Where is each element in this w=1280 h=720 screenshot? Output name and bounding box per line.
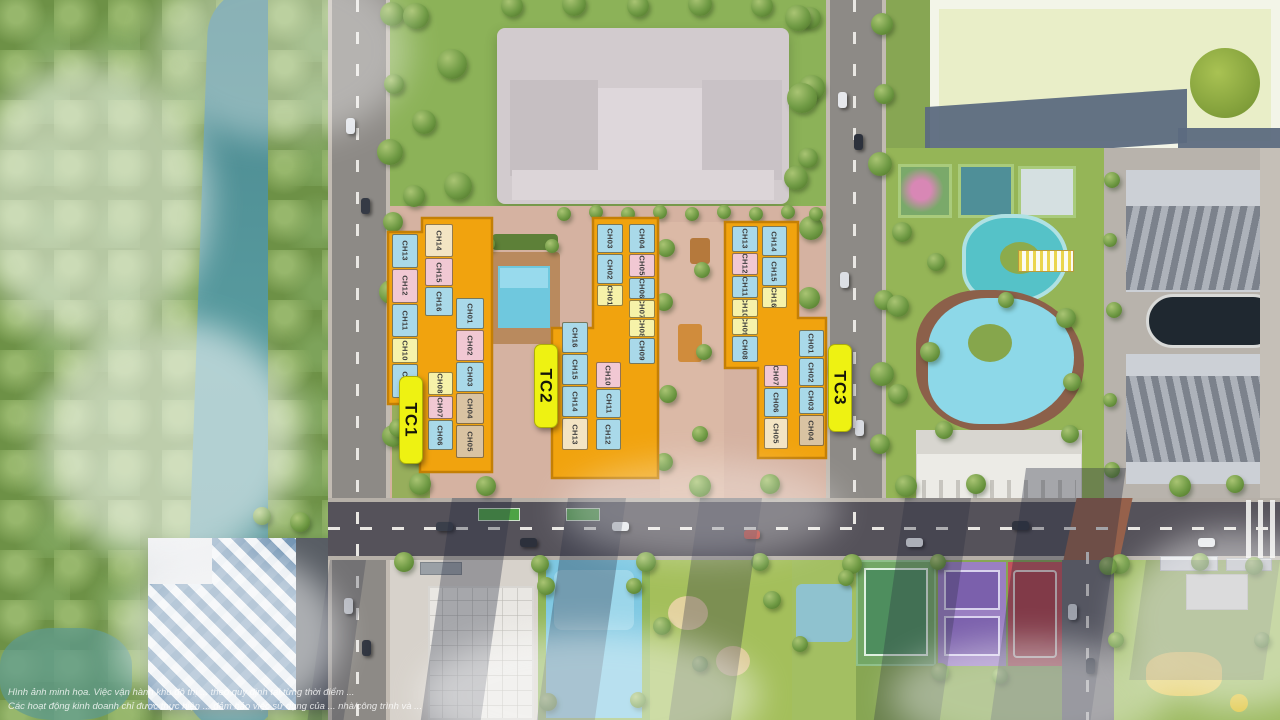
tree: [659, 385, 677, 403]
tree: [930, 554, 946, 570]
road-right-dash: [853, 0, 856, 524]
tree: [409, 473, 431, 495]
masterplan-aerial-view: CH13CH12CH11CH10CH09CH14CH15CH16CH01CH02…: [0, 0, 1280, 720]
tree: [920, 342, 940, 362]
tree: [531, 555, 549, 573]
south-right-playground: [1146, 652, 1222, 696]
tree: [868, 152, 892, 176]
tree: [781, 205, 795, 219]
unit-column-tc2-colB: CH04CH05CH06CH07CH08CH09: [629, 224, 655, 364]
unit-column-tc1-colD: CH08CH07CH06: [428, 372, 453, 450]
unit-tag[interactable]: CH07: [428, 396, 453, 419]
car: [361, 198, 370, 214]
unit-tag[interactable]: CH06: [764, 388, 788, 417]
tower-label-tc1[interactable]: TC1: [399, 376, 423, 464]
pickleball-court-1: [944, 570, 1000, 610]
tree: [888, 384, 908, 404]
tree: [476, 476, 496, 496]
diamond-roof-plain-corner: [148, 538, 212, 584]
tree: [966, 474, 986, 494]
tree: [1099, 557, 1117, 575]
unit-tag[interactable]: CH15: [425, 258, 453, 287]
tree: [384, 74, 404, 94]
car: [1198, 538, 1215, 547]
road-vertical-left: [328, 0, 390, 720]
tree: [931, 663, 949, 681]
tree: [927, 253, 945, 271]
tree: [621, 207, 635, 221]
unit-tag-label: CH12: [401, 276, 410, 296]
unit-tag-label: CH10: [741, 299, 750, 317]
unit-tag[interactable]: CH03: [799, 387, 824, 414]
unit-tag[interactable]: CH14: [562, 386, 588, 417]
unit-tag-label: CH15: [770, 261, 779, 281]
unit-tag-label: CH03: [606, 229, 615, 249]
unit-tag-label: CH16: [435, 292, 444, 312]
tree: [290, 512, 310, 532]
tower-label-tc2[interactable]: TC2: [534, 344, 558, 428]
unit-tag-label: CH10: [604, 365, 613, 385]
tree: [377, 139, 403, 165]
unit-tag-label: CH01: [606, 285, 615, 305]
unit-tag[interactable]: CH13: [732, 226, 758, 252]
tree: [1103, 393, 1117, 407]
tree: [763, 591, 781, 609]
unit-tag[interactable]: CH12: [392, 269, 418, 303]
tree: [589, 205, 603, 219]
unit-tag-label: CH13: [741, 229, 750, 249]
unit-tag-label: CH05: [772, 423, 781, 443]
unit-tag-label: CH08: [741, 339, 750, 359]
unit-tag[interactable]: CH08: [629, 319, 655, 337]
unit-tag-label: CH06: [436, 425, 445, 445]
unit-tag[interactable]: CH08: [732, 336, 758, 362]
unit-tag[interactable]: CH06: [629, 278, 655, 299]
tree: [655, 453, 673, 471]
unit-column-tc3-colD: CH01CH02CH03CH04: [799, 330, 824, 446]
tree: [1104, 462, 1120, 478]
tree: [537, 577, 555, 595]
unit-tag-label: CH09: [741, 318, 750, 336]
tree: [992, 668, 1008, 684]
unit-tag[interactable]: CH12: [732, 253, 758, 275]
unit-tag[interactable]: CH12: [596, 419, 621, 450]
car: [1086, 658, 1095, 674]
unit-column-tc2-colC: CH16CH15CH14CH13: [562, 322, 588, 450]
tree: [998, 292, 1014, 308]
sport-court-blue: [958, 164, 1014, 218]
tree: [895, 475, 917, 497]
unit-tag[interactable]: CH11: [732, 276, 758, 298]
unit-tag-label: CH06: [772, 392, 781, 412]
tree: [636, 552, 656, 572]
unit-tag-label: CH01: [466, 303, 475, 323]
river-bottom-pocket: [0, 628, 132, 720]
tree: [809, 207, 823, 221]
unit-tag[interactable]: CH16: [762, 287, 787, 308]
unit-tag[interactable]: CH16: [562, 322, 588, 353]
unit-tag-label: CH07: [638, 300, 647, 318]
tree: [696, 344, 712, 360]
car: [520, 538, 537, 547]
sand-circle-2: [716, 646, 750, 676]
unit-tag-label: CH14: [435, 230, 444, 250]
unit-tag[interactable]: CH01: [597, 285, 623, 306]
sport-court-white: [1018, 166, 1076, 218]
unit-tag-label: CH05: [638, 255, 647, 275]
tree: [694, 262, 710, 278]
unit-tag-label: CH06: [638, 279, 647, 299]
car: [744, 530, 760, 539]
diamond-roof-dark-strip: [296, 538, 328, 710]
unit-tag-label: CH16: [571, 327, 580, 347]
unit-tag[interactable]: CH04: [629, 224, 655, 253]
tower-label-tc3[interactable]: TC3: [828, 344, 852, 432]
car: [1012, 521, 1029, 530]
tree: [692, 656, 708, 672]
tree: [1191, 553, 1209, 571]
unit-tag-label: CH08: [436, 373, 445, 393]
unit-tag[interactable]: CH13: [562, 418, 588, 450]
tower-label-text: TC1: [401, 402, 421, 437]
unit-tag-label: CH08: [638, 319, 647, 337]
school-roof-left: [510, 80, 598, 176]
tree: [870, 434, 890, 454]
school-roof-center: [598, 88, 702, 180]
unit-tag[interactable]: CH03: [456, 362, 484, 393]
car: [612, 522, 629, 531]
car: [346, 118, 355, 134]
basketball-court: [1013, 570, 1057, 658]
tree: [838, 570, 854, 586]
tree: [630, 692, 646, 708]
unit-tag-label: CH04: [466, 399, 475, 419]
unit-tag[interactable]: CH09: [629, 338, 655, 364]
unit-tag[interactable]: CH16: [425, 287, 453, 316]
unit-tag-label: CH03: [466, 367, 475, 387]
car: [854, 134, 863, 150]
car: [1068, 604, 1077, 620]
unit-tag[interactable]: CH05: [456, 425, 484, 458]
tree: [383, 212, 403, 232]
bus-lane-mark-2: [566, 508, 600, 521]
tree: [798, 287, 820, 309]
canopy-building: [428, 586, 534, 720]
unit-tag[interactable]: CH14: [762, 226, 787, 256]
car: [838, 92, 847, 108]
cabana-row: [1018, 250, 1074, 272]
unit-tag[interactable]: CH09: [732, 318, 758, 336]
tree: [1245, 557, 1263, 575]
unit-tag-label: CH11: [401, 311, 410, 331]
unit-tag-label: CH02: [606, 259, 615, 279]
unit-tag[interactable]: CH07: [629, 300, 655, 318]
kids-zone-deck: [796, 584, 852, 642]
unit-column-tc1-colC: CH01CH02CH03CH04CH05: [456, 298, 484, 458]
road-left-dash: [356, 0, 359, 720]
tree: [539, 693, 557, 711]
sand-circle-1: [668, 596, 708, 630]
unit-column-tc1-colA: CH13CH12CH11CH10CH09: [392, 234, 418, 398]
tennis-court: [864, 568, 928, 656]
tree: [1056, 308, 1076, 328]
tree: [935, 421, 953, 439]
bus-lane-mark-1: [478, 508, 520, 521]
tree: [798, 148, 818, 168]
school-roof-right: [702, 80, 782, 180]
unit-tag-label: CH04: [807, 420, 816, 440]
unit-tag[interactable]: CH01: [799, 330, 824, 357]
unit-tag-label: CH16: [770, 287, 779, 307]
unit-tag[interactable]: CH08: [428, 372, 453, 395]
highrise-roof-a-louvers: [1126, 206, 1280, 290]
unit-tag-label: CH13: [571, 424, 580, 444]
tc12-pool-highlight: [500, 268, 548, 288]
car: [840, 272, 849, 288]
south-pool-highlight: [554, 570, 634, 630]
unit-tag[interactable]: CH03: [597, 224, 623, 253]
unit-column-tc2-colA: CH03CH02CH01: [597, 224, 623, 306]
tree: [874, 84, 894, 104]
tree: [545, 239, 559, 253]
school-roof-bottom: [512, 170, 774, 200]
tree: [1108, 632, 1124, 648]
unit-tag-label: CH12: [604, 424, 613, 444]
tree: [717, 205, 731, 219]
unit-tag-label: CH13: [401, 241, 410, 261]
unit-tag[interactable]: CH07: [764, 365, 788, 387]
unit-tag[interactable]: CH10: [596, 362, 621, 388]
unit-tag[interactable]: CH11: [596, 389, 621, 418]
unit-tag[interactable]: CH15: [562, 354, 588, 385]
unit-tag-label: CH01: [807, 334, 816, 354]
unit-tag[interactable]: CH11: [392, 304, 418, 338]
unit-tag-label: CH04: [638, 228, 647, 248]
unit-tag-label: CH14: [571, 391, 580, 411]
tree: [437, 49, 467, 79]
unit-tag[interactable]: CH02: [799, 358, 824, 385]
tree: [685, 207, 699, 221]
unit-column-tc2-colD: CH10CH11CH12: [596, 362, 621, 450]
tree: [653, 205, 667, 219]
road-h-dash: [328, 527, 1280, 530]
tree: [1063, 373, 1081, 391]
tree: [657, 239, 675, 257]
unit-tag[interactable]: CH14: [425, 224, 453, 257]
bus-shelter-1: [420, 562, 462, 575]
south-lawn: [650, 558, 792, 720]
tree: [394, 552, 414, 572]
tree: [1104, 172, 1120, 188]
unit-tag[interactable]: CH04: [799, 415, 824, 446]
unit-tag-label: CH10: [401, 341, 410, 361]
south-right-pavilion: [1186, 574, 1248, 610]
tree: [653, 617, 671, 635]
south-road-dash: [1086, 552, 1089, 720]
unit-tag[interactable]: CH13: [392, 234, 418, 268]
unit-tag-label: CH07: [772, 366, 781, 386]
unit-tag-label: CH12: [741, 254, 750, 274]
unit-tag-label: CH09: [638, 341, 647, 361]
unit-tag[interactable]: CH06: [428, 420, 453, 450]
unit-tag-label: CH11: [604, 394, 613, 414]
highrise-roof-b-louvers: [1126, 376, 1280, 462]
unit-tag[interactable]: CH10: [732, 299, 758, 317]
unit-tag-label: CH07: [436, 398, 445, 418]
tree: [787, 83, 817, 113]
unit-tag[interactable]: CH10: [392, 338, 418, 363]
tree: [403, 185, 425, 207]
pickleball-court-2: [944, 616, 1000, 656]
unit-tag-label: CH03: [807, 390, 816, 410]
unit-tag[interactable]: CH02: [456, 330, 484, 361]
unit-tag-label: CH15: [571, 359, 580, 379]
tree: [412, 110, 436, 134]
unit-column-tc1-colB: CH14CH15CH16: [425, 224, 453, 316]
unit-column-tc3-colB: CH14CH15CH16: [762, 226, 787, 308]
tree: [1226, 475, 1244, 493]
tree: [557, 207, 571, 221]
unit-tag[interactable]: CH05: [764, 418, 788, 449]
tree: [626, 578, 642, 594]
tree: [692, 426, 708, 442]
unit-tag-label: CH02: [466, 335, 475, 355]
courtyard-pavilion-2: [690, 238, 710, 264]
tree: [380, 2, 404, 26]
unit-tag-label: CH14: [770, 231, 779, 251]
tree: [792, 636, 808, 652]
car: [436, 522, 453, 531]
tree: [887, 295, 909, 317]
unit-tag[interactable]: CH02: [597, 254, 623, 283]
car: [906, 538, 923, 547]
tree: [655, 293, 673, 311]
tree: [1103, 233, 1117, 247]
tree: [1169, 475, 1191, 497]
tree: [253, 507, 271, 525]
sport-court-pink: [898, 164, 952, 218]
tree: [871, 13, 893, 35]
car: [344, 598, 353, 614]
car: [362, 640, 371, 656]
unit-tag[interactable]: CH04: [456, 393, 484, 424]
tree: [1254, 632, 1270, 648]
tower-label-text: TC3: [830, 370, 850, 405]
unit-tag[interactable]: CH01: [456, 298, 484, 329]
tree: [403, 3, 429, 29]
tree: [1106, 302, 1122, 318]
topright-green-circle: [1190, 48, 1260, 118]
unit-tag[interactable]: CH15: [762, 257, 787, 285]
tree: [481, 237, 495, 251]
car: [855, 420, 864, 436]
tree: [892, 222, 912, 242]
tree: [689, 475, 711, 497]
unit-tag[interactable]: CH05: [629, 254, 655, 277]
tree: [870, 362, 894, 386]
logo-dot: [1230, 694, 1248, 712]
bus-shelter-2: [1160, 556, 1218, 571]
unit-column-tc3-colC: CH07CH06CH05: [764, 365, 788, 449]
unit-tag-label: CH02: [807, 362, 816, 382]
unit-tag-label: CH15: [435, 262, 444, 282]
tower-label-text: TC2: [536, 368, 556, 403]
tree: [444, 172, 472, 200]
tree: [1061, 425, 1079, 443]
unit-tag-label: CH11: [741, 277, 750, 297]
tree: [785, 5, 811, 31]
main-pool-island: [968, 324, 1012, 362]
tree: [749, 207, 763, 221]
unit-tag-label: CH05: [466, 431, 475, 451]
tree: [784, 166, 808, 190]
unit-column-tc3-colA: CH13CH12CH11CH10CH09CH08: [732, 226, 758, 362]
tree: [760, 474, 780, 494]
tree: [751, 553, 769, 571]
